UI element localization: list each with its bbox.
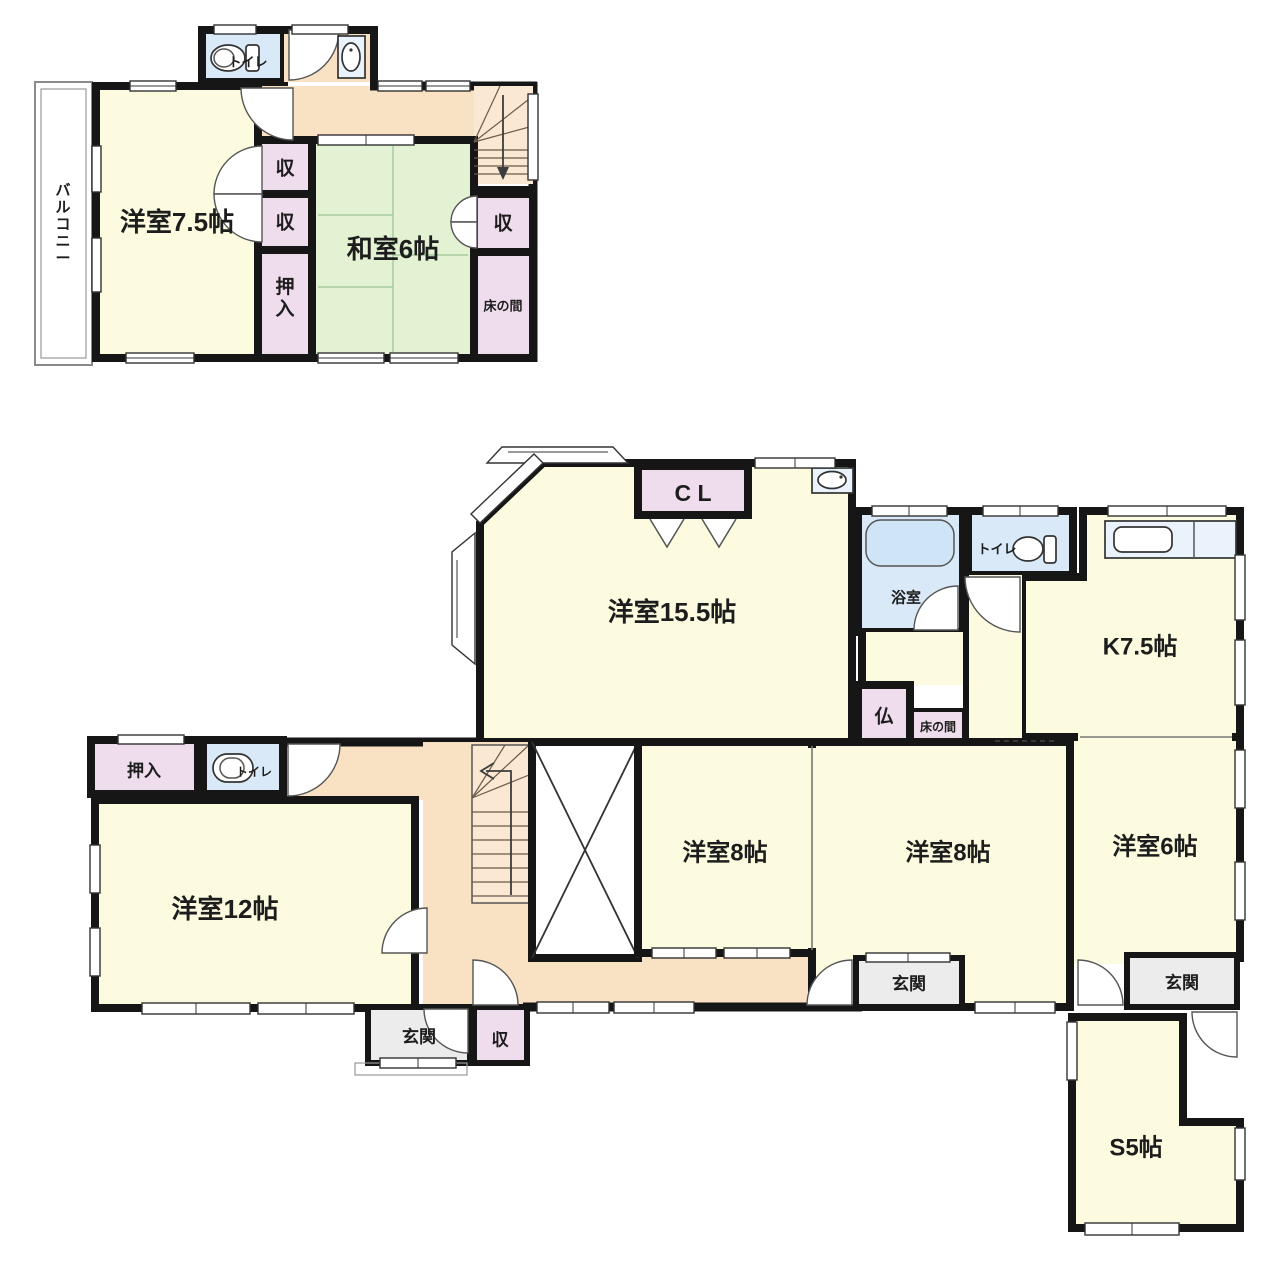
door-arc bbox=[1078, 960, 1123, 1005]
room-washitsu-6-label: 和室6帖 bbox=[347, 234, 439, 264]
washbasin-icon bbox=[338, 36, 365, 78]
stairs-1f bbox=[472, 745, 529, 903]
toilet-1f-left-label: トイレ bbox=[236, 765, 272, 779]
room-yoshitsu-12-label: 洋室12帖 bbox=[172, 894, 279, 924]
storage-label: 収 bbox=[275, 212, 295, 234]
floor-plan-canvas: 洋室7.5帖 和室6帖 収 収 収 押入 床の間 トイレ バルコニー bbox=[0, 0, 1280, 1280]
balcony-label: バルコニー bbox=[55, 182, 70, 267]
room-yoshitsu-8-right-label: 洋室8帖 bbox=[905, 839, 990, 867]
genkan-middle-label: 玄関 bbox=[892, 974, 926, 994]
room-yoshitsu-8-left-label: 洋室8帖 bbox=[682, 839, 767, 867]
kitchen-counter-icon bbox=[1105, 521, 1236, 558]
bath-label: 浴室 bbox=[891, 589, 921, 607]
toilet-2f-label: トイレ bbox=[228, 55, 267, 70]
genkan-bottom-label: 玄関 bbox=[402, 1027, 436, 1047]
closet-cl-label: C L bbox=[674, 480, 711, 506]
washbasin-icon bbox=[812, 468, 853, 493]
second-floor-plan: 洋室7.5帖 和室6帖 収 収 収 押入 床の間 トイレ バルコニー bbox=[35, 25, 538, 365]
bay-window-top bbox=[487, 447, 628, 463]
bay-window-left bbox=[452, 533, 475, 664]
storage-label: 収 bbox=[275, 158, 295, 180]
storage-bottom-label: 収 bbox=[492, 1031, 510, 1050]
butsudan-label: 仏 bbox=[874, 706, 893, 728]
room-service-5-label: S5帖 bbox=[1109, 1135, 1162, 1162]
first-floor-plan: 洋室15.5帖 C L 浴室 トイレ K7.5帖 仏 床の間 洋室8帖 洋室8帖… bbox=[90, 447, 1245, 1235]
room-yoshitsu-6-label: 洋室6帖 bbox=[1112, 833, 1197, 861]
kitchen-label: K7.5帖 bbox=[1103, 634, 1178, 661]
floor-plan-drawing: 洋室7.5帖 和室6帖 収 収 収 押入 床の間 トイレ バルコニー bbox=[0, 0, 1280, 1280]
genkan-right-label: 玄関 bbox=[1165, 973, 1199, 993]
door-arc bbox=[1192, 1012, 1237, 1057]
storage-label: 収 bbox=[493, 213, 513, 235]
toilet-icon bbox=[1013, 536, 1056, 563]
oshiire-1f-label: 押入 bbox=[127, 761, 161, 781]
tokonoma-1f-label: 床の間 bbox=[920, 719, 956, 734]
hall-washarea bbox=[858, 632, 963, 685]
oshiire-2f-label: 押入 bbox=[275, 275, 294, 320]
bathtub-icon bbox=[866, 520, 954, 566]
toilet-1f-label: トイレ bbox=[977, 542, 1016, 557]
room-yoshitsu-7-5-label: 洋室7.5帖 bbox=[120, 207, 234, 237]
room-yoshitsu-15-5-label: 洋室15.5帖 bbox=[608, 597, 737, 627]
tokonoma-2f-label: 床の間 bbox=[483, 299, 522, 314]
